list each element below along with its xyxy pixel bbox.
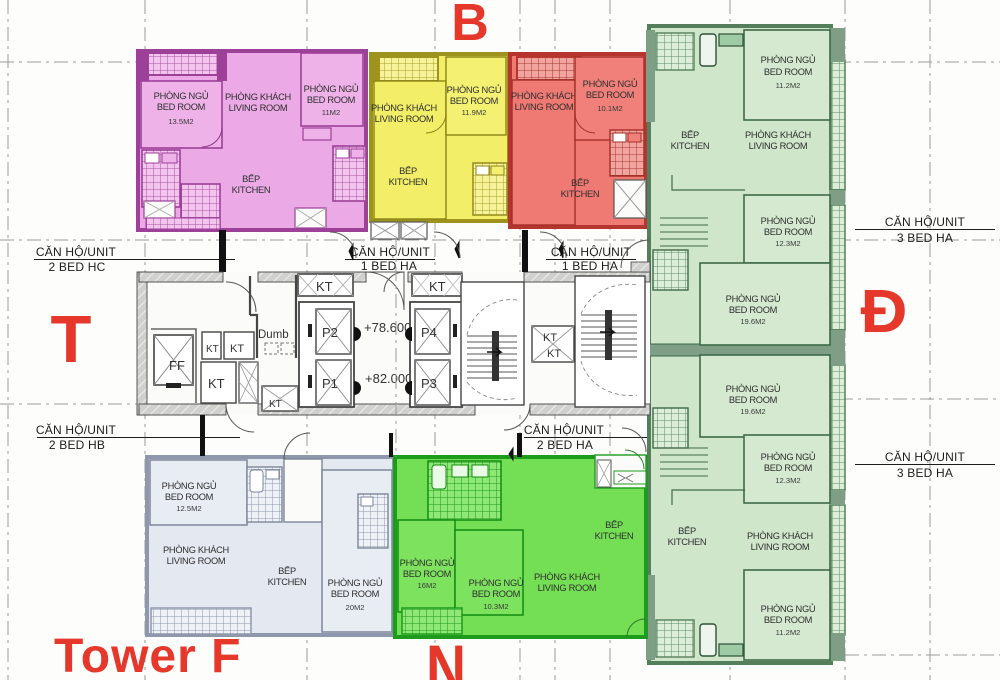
svg-text:FF: FF xyxy=(169,358,185,373)
svg-text:16M2: 16M2 xyxy=(418,581,437,590)
svg-text:BED ROOM: BED ROOM xyxy=(764,463,812,473)
svg-text:PHÒNG KHÁCH: PHÒNG KHÁCH xyxy=(225,92,291,102)
svg-text:CĂN HỘ/UNIT: CĂN HỘ/UNIT xyxy=(350,244,431,259)
svg-text:3 BED HA: 3 BED HA xyxy=(897,466,953,480)
svg-text:PHÒNG NGỦ: PHÒNG NGỦ xyxy=(761,603,816,614)
svg-text:BED ROOM: BED ROOM xyxy=(764,67,812,77)
svg-text:PHÒNG NGỦ: PHÒNG NGỦ xyxy=(583,78,638,89)
svg-text:PHÒNG NGỦ: PHÒNG NGỦ xyxy=(154,90,209,101)
svg-text:PHÒNG NGỦ: PHÒNG NGỦ xyxy=(328,577,383,588)
svg-text:3 BED HA: 3 BED HA xyxy=(897,231,953,245)
svg-text:T: T xyxy=(51,302,92,377)
svg-text:Dumb: Dumb xyxy=(258,329,289,341)
svg-text:KT: KT xyxy=(547,348,561,360)
svg-text:PHÒNG KHÁCH: PHÒNG KHÁCH xyxy=(747,531,813,541)
svg-text:PHÒNG NGỦ: PHÒNG NGỦ xyxy=(726,383,781,394)
svg-text:P4: P4 xyxy=(421,325,437,340)
svg-text:KT: KT xyxy=(316,279,333,294)
svg-text:PHÒNG NGỦ: PHÒNG NGỦ xyxy=(447,84,502,95)
svg-text:BED ROOM: BED ROOM xyxy=(165,492,213,502)
svg-text:LIVING ROOM: LIVING ROOM xyxy=(515,102,574,112)
svg-text:12.3M2: 12.3M2 xyxy=(775,239,800,248)
svg-text:BẾP: BẾP xyxy=(242,174,260,184)
svg-text:Đ: Đ xyxy=(861,277,908,345)
svg-text:LIVING ROOM: LIVING ROOM xyxy=(538,583,597,593)
svg-text:KT: KT xyxy=(206,344,219,355)
svg-text:CĂN HỘ/UNIT: CĂN HỘ/UNIT xyxy=(524,422,605,437)
svg-text:PHÒNG NGỦ: PHÒNG NGỦ xyxy=(304,83,359,94)
svg-text:BẾP: BẾP xyxy=(605,520,623,530)
svg-text:20M2: 20M2 xyxy=(346,603,365,612)
svg-text:BẾP: BẾP xyxy=(571,178,589,188)
svg-text:BẾP: BẾP xyxy=(399,166,417,176)
svg-text:BED ROOM: BED ROOM xyxy=(472,589,520,599)
svg-text:12.5M2: 12.5M2 xyxy=(176,504,201,513)
svg-text:BED ROOM: BED ROOM xyxy=(450,96,498,106)
svg-text:LIVING ROOM: LIVING ROOM xyxy=(749,141,808,151)
svg-text:2 BED HB: 2 BED HB xyxy=(49,438,105,452)
svg-text:19.6M2: 19.6M2 xyxy=(740,407,765,416)
svg-text:P2: P2 xyxy=(322,325,338,340)
svg-text:11.2M2: 11.2M2 xyxy=(776,628,801,637)
svg-text:PHÒNG NGỦ: PHÒNG NGỦ xyxy=(469,577,524,588)
svg-text:BED ROOM: BED ROOM xyxy=(586,90,634,100)
svg-text:KT: KT xyxy=(543,332,557,344)
svg-text:19.6M2: 19.6M2 xyxy=(740,317,765,326)
svg-text:BED ROOM: BED ROOM xyxy=(764,615,812,625)
svg-text:2 BED HA: 2 BED HA xyxy=(537,438,593,452)
svg-text:BED ROOM: BED ROOM xyxy=(764,227,812,237)
svg-text:+82.000: +82.000 xyxy=(365,371,412,386)
svg-text:BẾP: BẾP xyxy=(278,566,296,576)
svg-text:BED ROOM: BED ROOM xyxy=(157,102,205,112)
svg-text:PHÒNG KHÁCH: PHÒNG KHÁCH xyxy=(163,545,229,555)
svg-text:KT: KT xyxy=(269,399,282,410)
svg-text:11.2M2: 11.2M2 xyxy=(776,81,801,90)
svg-text:12.3M2: 12.3M2 xyxy=(775,476,800,485)
svg-text:PHÒNG NGỦ: PHÒNG NGỦ xyxy=(162,480,217,491)
svg-text:KITCHEN: KITCHEN xyxy=(561,189,600,199)
svg-text:BED ROOM: BED ROOM xyxy=(307,95,355,105)
svg-text:PHÒNG NGỦ: PHÒNG NGỦ xyxy=(400,557,455,568)
svg-text:10.1M2: 10.1M2 xyxy=(597,104,622,113)
svg-text:BED ROOM: BED ROOM xyxy=(729,305,777,315)
svg-text:2 BED HC: 2 BED HC xyxy=(49,260,106,274)
svg-text:CĂN HỘ/UNIT: CĂN HỘ/UNIT xyxy=(885,449,966,464)
svg-text:10.3M2: 10.3M2 xyxy=(483,602,508,611)
svg-text:P1: P1 xyxy=(322,376,338,391)
svg-text:KITCHEN: KITCHEN xyxy=(389,177,428,187)
svg-text:1 BED HA: 1 BED HA xyxy=(562,259,618,273)
svg-text:11M2: 11M2 xyxy=(322,108,340,117)
svg-text:KT: KT xyxy=(429,279,446,294)
svg-text:PHÒNG NGỦ: PHÒNG NGỦ xyxy=(761,215,816,226)
svg-text:CĂN HỘ/UNIT: CĂN HỘ/UNIT xyxy=(36,244,117,259)
svg-text:Tower F: Tower F xyxy=(54,630,241,680)
svg-text:BED ROOM: BED ROOM xyxy=(331,589,379,599)
svg-text:PHÒNG KHÁCH: PHÒNG KHÁCH xyxy=(511,91,577,101)
svg-text:KITCHEN: KITCHEN xyxy=(232,185,271,195)
svg-text:LIVING ROOM: LIVING ROOM xyxy=(229,103,288,113)
svg-text:KITCHEN: KITCHEN xyxy=(671,141,710,151)
svg-text:PHÒNG KHÁCH: PHÒNG KHÁCH xyxy=(745,130,811,140)
svg-text:KITCHEN: KITCHEN xyxy=(595,531,634,541)
svg-text:PHÒNG KHÁCH: PHÒNG KHÁCH xyxy=(534,572,600,582)
svg-text:B: B xyxy=(451,0,489,52)
svg-text:BED ROOM: BED ROOM xyxy=(729,395,777,405)
svg-text:P3: P3 xyxy=(421,376,437,391)
svg-text:BẾP: BẾP xyxy=(681,130,699,140)
svg-text:BED ROOM: BED ROOM xyxy=(403,569,451,579)
svg-text:+78.600: +78.600 xyxy=(364,320,411,335)
svg-text:LIVING ROOM: LIVING ROOM xyxy=(167,556,226,566)
svg-text:PHÒNG NGỦ: PHÒNG NGỦ xyxy=(726,293,781,304)
svg-text:CĂN HỘ/UNIT: CĂN HỘ/UNIT xyxy=(36,422,117,437)
svg-text:PHÒNG NGỦ: PHÒNG NGỦ xyxy=(761,451,816,462)
svg-text:LIVING ROOM: LIVING ROOM xyxy=(375,114,434,124)
svg-text:KITCHEN: KITCHEN xyxy=(668,537,707,547)
svg-text:11.9M2: 11.9M2 xyxy=(462,108,487,117)
svg-text:PHÒNG NGỦ: PHÒNG NGỦ xyxy=(761,54,816,65)
svg-text:CĂN HỘ/UNIT: CĂN HỘ/UNIT xyxy=(885,214,966,229)
svg-text:13.5M2: 13.5M2 xyxy=(168,117,193,126)
svg-text:PHÒNG KHÁCH: PHÒNG KHÁCH xyxy=(371,103,437,113)
svg-text:LIVING ROOM: LIVING ROOM xyxy=(751,542,810,552)
svg-text:BẾP: BẾP xyxy=(678,526,696,536)
svg-text:KT: KT xyxy=(230,343,244,355)
svg-text:KT: KT xyxy=(208,376,225,391)
svg-text:KITCHEN: KITCHEN xyxy=(268,577,307,587)
svg-text:N: N xyxy=(426,631,466,680)
svg-text:1 BED HA: 1 BED HA xyxy=(361,259,417,273)
